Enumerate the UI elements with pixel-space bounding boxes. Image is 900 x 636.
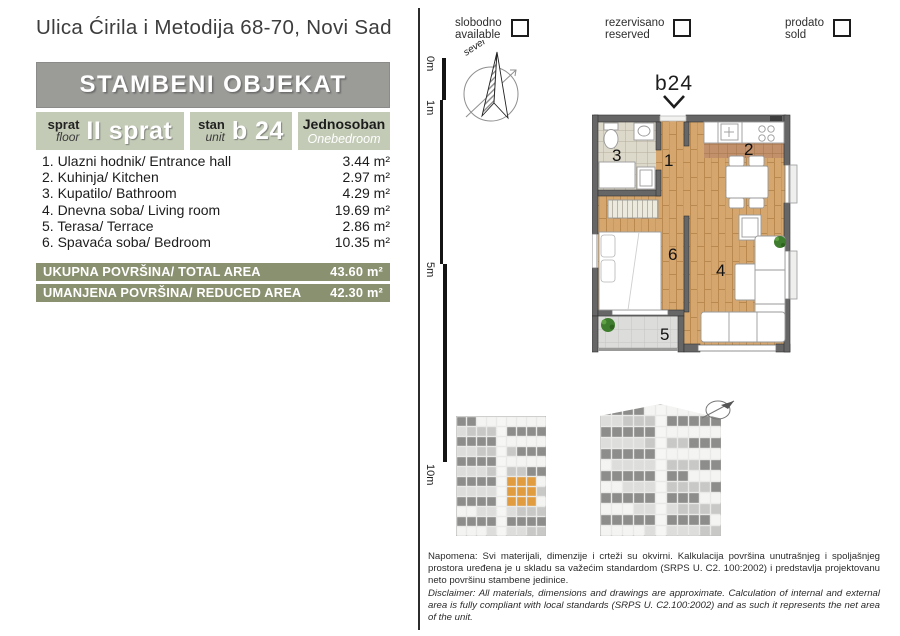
site-plan-cell [537, 487, 546, 496]
site-plan-cell [457, 527, 466, 536]
site-plan-cell [497, 527, 506, 536]
site-plan-cell [487, 467, 496, 476]
site-plan-cell [467, 437, 476, 446]
site-plan-cell [487, 487, 496, 496]
flyer-page: Ulica Ćirila i Metodija 68-70, Novi Sad … [0, 0, 900, 636]
site-plan-cell [477, 507, 486, 516]
room-row: 4. Dnevna soba/ Living room 19.69 m² [36, 202, 390, 218]
site-plan-cell [457, 487, 466, 496]
site-plan-cell [678, 427, 688, 437]
room-row: 1. Ulazni hodnik/ Entrance hall 3.44 m² [36, 153, 390, 169]
site-plan-cell [689, 493, 699, 503]
site-plan-cell [656, 482, 666, 492]
site-plan-cell [667, 427, 677, 437]
room-label: 6. Spavaća soba/ Bedroom [42, 234, 211, 250]
reduced-area-bar: UMANJENA POVRŠINA/ REDUCED AREA 42.30 m² [36, 284, 390, 302]
site-plan-cell [467, 527, 476, 536]
site-plan-cell [612, 493, 622, 503]
site-plan-cell [678, 438, 688, 448]
site-plan-cell [700, 515, 710, 525]
site-plan-cell [537, 477, 546, 486]
site-plan-cell [527, 417, 536, 426]
site-plan-cell [623, 427, 633, 437]
room-area: 4.29 m² [343, 185, 390, 201]
site-plan-cell [634, 460, 644, 470]
site-plan-cell [601, 405, 611, 415]
site-plan-cell [517, 417, 526, 426]
site-plan-cell [487, 417, 496, 426]
type-label-sr: Jednosoban [303, 117, 385, 132]
site-plan-cell [667, 493, 677, 503]
site-plan-cell [689, 405, 699, 415]
site-plan-cell [656, 526, 666, 536]
site-plan-cell [711, 493, 721, 503]
site-plan-cell [612, 515, 622, 525]
site-plan-cell [667, 526, 677, 536]
site-plan-cell [457, 457, 466, 466]
room-area: 19.69 m² [335, 202, 390, 218]
site-plan-cell [656, 405, 666, 415]
disclaimer-english: Disclaimer: All materials, dimensions an… [428, 588, 880, 625]
site-plan-cell [517, 527, 526, 536]
site-plan-cell [667, 504, 677, 514]
scale-label-10m: 10m [424, 464, 436, 485]
site-plan-cell [645, 438, 655, 448]
site-plan-cell [457, 517, 466, 526]
site-plan-cell [517, 447, 526, 456]
site-plan-cell [601, 438, 611, 448]
site-plan-cell [645, 493, 655, 503]
site-plan-cell [467, 487, 476, 496]
room-label: 3. Kupatilo/ Bathroom [42, 185, 177, 201]
site-compass-icon [700, 396, 736, 422]
site-plan-cell [487, 477, 496, 486]
site-plan-right-building [600, 404, 721, 536]
site-plan-cell [689, 515, 699, 525]
site-plan-cell [711, 427, 721, 437]
site-plan-cell [711, 526, 721, 536]
site-plan-cell [634, 504, 644, 514]
legend-reserved-en: reserved [605, 30, 664, 42]
site-plan-cell [623, 471, 633, 481]
site-plan-cell [527, 427, 536, 436]
site-plan-cell [700, 438, 710, 448]
legend-sold-label: prodato sold [785, 18, 824, 42]
site-plan-cell [634, 427, 644, 437]
site-plan-cell [689, 504, 699, 514]
site-plan-cell [634, 438, 644, 448]
site-plan-cell [623, 449, 633, 459]
site-plan-cell [645, 416, 655, 426]
room-number-hall: 1 [664, 151, 673, 170]
unit-labels: stan unit [198, 119, 225, 144]
reserved-checkbox[interactable] [673, 19, 691, 37]
site-plan-cell [487, 447, 496, 456]
site-plan-cell [689, 438, 699, 448]
site-plan-cell [457, 417, 466, 426]
site-plan-cell [711, 449, 721, 459]
site-plan-cell [656, 504, 666, 514]
site-plan-cell [527, 507, 536, 516]
room-list: 1. Ulazni hodnik/ Entrance hall 3.44 m² … [36, 153, 390, 250]
site-plan-cell [634, 471, 644, 481]
site-plan-cell [700, 493, 710, 503]
site-plan-cell [497, 477, 506, 486]
site-plan-cell [601, 427, 611, 437]
site-plan-cell [527, 517, 536, 526]
site-plan-cell [497, 457, 506, 466]
unit-info-row: sprat floor II sprat stan unit b 24 Jedn… [36, 112, 390, 150]
site-plan-cell [601, 482, 611, 492]
site-plan-cell [612, 438, 622, 448]
site-plan-cell [656, 449, 666, 459]
site-plan-cell [527, 477, 536, 486]
site-plan-cell [507, 517, 516, 526]
site-plan-cell [667, 460, 677, 470]
site-plan-cell [645, 427, 655, 437]
site-plan-cell [711, 471, 721, 481]
site-plan-cell [678, 471, 688, 481]
site-plan-cell [612, 482, 622, 492]
site-plan-cell [612, 405, 622, 415]
site-plan-cell [689, 416, 699, 426]
site-plan-cell [537, 437, 546, 446]
site-plan-cell [497, 497, 506, 506]
site-plan-cell [623, 504, 633, 514]
site-plan-cell [477, 457, 486, 466]
site-plan-cell [667, 482, 677, 492]
site-plan-cell [678, 482, 688, 492]
site-plan-cell [477, 447, 486, 456]
legend-available: slobodno available [455, 18, 529, 42]
room-number-kitchen: 2 [744, 140, 753, 159]
room-area: 2.86 m² [343, 218, 390, 234]
site-plan-cell [700, 471, 710, 481]
site-plan-cell [537, 517, 546, 526]
site-plan-cell [497, 517, 506, 526]
site-plan-cell [527, 447, 536, 456]
bedroom-furniture [599, 200, 661, 310]
site-plan-cell [517, 467, 526, 476]
scale-segment-5-10m [443, 264, 447, 462]
site-plan-cell [527, 457, 536, 466]
legend-sold-en: sold [785, 30, 824, 42]
unit-label-en: unit [198, 131, 225, 144]
site-plan-cell [487, 427, 496, 436]
legend-sold: prodato sold [785, 18, 851, 42]
site-plan-cell [457, 427, 466, 436]
room-label: 1. Ulazni hodnik/ Entrance hall [42, 153, 231, 169]
site-plan-cell [527, 467, 536, 476]
site-plan-cell [656, 493, 666, 503]
site-plan-cell [507, 527, 516, 536]
site-plan-cell [467, 417, 476, 426]
type-cell: Jednosoban Onebedroom [298, 112, 390, 150]
floor-value: II sprat [86, 117, 172, 146]
site-plan-cell [601, 449, 611, 459]
site-plan-cell [487, 457, 496, 466]
room-area: 10.35 m² [335, 234, 390, 250]
site-plan-cell [623, 482, 633, 492]
site-plan-cell [711, 438, 721, 448]
site-plan-cell [517, 457, 526, 466]
site-plan-cell [517, 507, 526, 516]
site-plan-cell [527, 487, 536, 496]
site-plan-cell [517, 437, 526, 446]
plan-unit-label: b24 [650, 72, 698, 96]
unit-cell: stan unit b 24 [190, 112, 292, 150]
site-plan-left-building [456, 416, 546, 536]
site-plan-cell [477, 437, 486, 446]
site-plan-cell [623, 526, 633, 536]
site-plan-cell [497, 507, 506, 516]
site-plan-cell [477, 487, 486, 496]
legend-reserved: rezervisano reserved [605, 18, 691, 42]
site-plan-cell [467, 447, 476, 456]
site-plan-cell [678, 526, 688, 536]
room-area: 3.44 m² [343, 153, 390, 169]
vertical-divider [418, 8, 420, 630]
site-plan-cell [656, 471, 666, 481]
room-label: 5. Terasa/ Terrace [42, 218, 154, 234]
site-plan-cell [667, 405, 677, 415]
site-plan-cell [656, 416, 666, 426]
site-plan-cell [507, 427, 516, 436]
site-plan-cell [667, 438, 677, 448]
site-plan-cell [634, 493, 644, 503]
room-row: 6. Spavaća soba/ Bedroom 10.35 m² [36, 234, 390, 250]
floor-labels: sprat floor [48, 119, 80, 144]
site-plan-cell [507, 467, 516, 476]
site-plan-cell [477, 517, 486, 526]
scale-label-5m: 5m [424, 262, 436, 277]
site-plan-cell [678, 416, 688, 426]
site-plan-cell [517, 487, 526, 496]
room-label: 2. Kuhinja/ Kitchen [42, 169, 159, 185]
disclaimer-block: Napomena: Svi materijali, dimenzije i cr… [428, 551, 880, 624]
site-plan-cell [656, 460, 666, 470]
building-header-label: STAMBENI OBJEKAT [79, 71, 346, 99]
building-header: STAMBENI OBJEKAT [36, 62, 390, 108]
site-plan-cell [634, 515, 644, 525]
site-plan-cell [667, 416, 677, 426]
available-checkbox[interactable] [511, 19, 529, 37]
legend-available-label: slobodno available [455, 18, 502, 42]
site-plan-cell [645, 460, 655, 470]
site-plan-cell [678, 493, 688, 503]
site-plan-cell [457, 477, 466, 486]
room-row: 2. Kuhinja/ Kitchen 2.97 m² [36, 169, 390, 185]
site-plan-cell [678, 449, 688, 459]
site-plan-cell [477, 417, 486, 426]
site-plan-cell [497, 467, 506, 476]
site-plan-cell [487, 527, 496, 536]
site-plan-cell [678, 460, 688, 470]
room-number-bedroom: 6 [668, 245, 677, 264]
disclaimer-serbian: Napomena: Svi materijali, dimenzije i cr… [428, 551, 880, 588]
unit-value: b 24 [232, 117, 284, 146]
scale-label-1m: 1m [424, 100, 436, 115]
site-plan-cell [711, 482, 721, 492]
site-plan-cell [612, 504, 622, 514]
site-plan-cell [537, 497, 546, 506]
site-plan-cell [467, 427, 476, 436]
site-plan-cell [537, 507, 546, 516]
room-area: 2.97 m² [343, 169, 390, 185]
site-plan-cell [656, 427, 666, 437]
legend-reserved-label: rezervisano reserved [605, 18, 664, 42]
sold-checkbox[interactable] [833, 19, 851, 37]
site-plan-cell [537, 527, 546, 536]
site-plan-cell [477, 477, 486, 486]
site-plan-cell [507, 497, 516, 506]
site-plan-cell [467, 477, 476, 486]
site-plan-cell [623, 460, 633, 470]
site-plan-cell [467, 507, 476, 516]
room-row: 5. Terasa/ Terrace 2.86 m² [36, 218, 390, 234]
site-plan-cell [667, 515, 677, 525]
site-plan-cell [700, 482, 710, 492]
floor-label-en: floor [48, 131, 80, 144]
site-plan-cell [467, 467, 476, 476]
site-plan-cell [689, 460, 699, 470]
site-plan-cell [634, 449, 644, 459]
site-plan-cell [711, 515, 721, 525]
site-plan-cell [601, 471, 611, 481]
site-plan-cell [457, 507, 466, 516]
site-plan-cell [700, 504, 710, 514]
site-plan-cell [507, 447, 516, 456]
site-plan-cell [623, 515, 633, 525]
site-plan-cell [612, 471, 622, 481]
site-plan-cell [457, 467, 466, 476]
site-plan-cell [601, 493, 611, 503]
site-plan-cell [517, 497, 526, 506]
site-plan-cell [507, 477, 516, 486]
north-compass-icon: sever [452, 40, 530, 134]
site-plan-cell [467, 517, 476, 526]
scale-segment-0-1m [442, 58, 446, 100]
site-plan-cell [517, 477, 526, 486]
site-plan-cell [527, 497, 536, 506]
site-plan-cell [507, 487, 516, 496]
site-plan-cell [497, 487, 506, 496]
site-plan-cell [601, 460, 611, 470]
site-plan-cell [689, 449, 699, 459]
site-plan-cell [527, 527, 536, 536]
site-plan-cell [700, 449, 710, 459]
total-area-bar: UKUPNA POVRŠINA/ TOTAL AREA 43.60 m² [36, 263, 390, 281]
site-plan-cell [623, 416, 633, 426]
site-plan-cell [645, 471, 655, 481]
site-plan-cell [601, 526, 611, 536]
room-number-living: 4 [716, 261, 725, 280]
site-plan-cell [645, 482, 655, 492]
site-plan-cell [487, 437, 496, 446]
site-plan-cell [477, 427, 486, 436]
site-plan-cell [537, 467, 546, 476]
site-plan-cell [711, 460, 721, 470]
site-plan-cell [645, 405, 655, 415]
site-plan-cell [689, 471, 699, 481]
site-plan-cell [623, 493, 633, 503]
site-plan-cell [612, 526, 622, 536]
total-area-value: 43.60 m² [330, 264, 383, 279]
kitchen-vent [770, 116, 782, 121]
site-plan-cell [477, 527, 486, 536]
site-plan-cell [612, 416, 622, 426]
site-plan-cell [634, 416, 644, 426]
site-plan-cell [678, 405, 688, 415]
site-plan-cell [487, 497, 496, 506]
site-plan-cell [487, 507, 496, 516]
site-plan-cell [507, 457, 516, 466]
site-plan-cell [601, 504, 611, 514]
site-plan-cell [507, 417, 516, 426]
scale-label-0m: 0m [424, 56, 436, 71]
floor-plan: 1 2 3 4 5 6 [592, 108, 804, 356]
site-plan-cell [645, 526, 655, 536]
room-label: 4. Dnevna soba/ Living room [42, 202, 220, 218]
site-plan-cell [612, 460, 622, 470]
site-plan-cell [700, 460, 710, 470]
site-plan-cell [689, 427, 699, 437]
site-plan-cell [623, 405, 633, 415]
site-plan-cell [537, 427, 546, 436]
site-plan-cell [467, 497, 476, 506]
site-plan-cell [497, 447, 506, 456]
site-plan-cell [497, 427, 506, 436]
site-plan-cell [689, 526, 699, 536]
site-plan-cell [517, 427, 526, 436]
site-plan-cell [477, 497, 486, 506]
site-plan-cell [634, 482, 644, 492]
site-plan-cell [689, 482, 699, 492]
site-plan-cell [537, 417, 546, 426]
site-plan-cell [678, 515, 688, 525]
site-plan-cell [656, 515, 666, 525]
address-title: Ulica Ćirila i Metodija 68-70, Novi Sad [36, 16, 416, 40]
site-plan-cell [487, 517, 496, 526]
site-plan-cell [517, 517, 526, 526]
site-plan-cell [645, 504, 655, 514]
site-plan-cell [623, 438, 633, 448]
site-plan-cell [497, 437, 506, 446]
site-plan-cell [667, 471, 677, 481]
site-plan-cell [700, 526, 710, 536]
site-plan-cell [497, 417, 506, 426]
site-plan-cell [612, 449, 622, 459]
site-plan-cell [711, 504, 721, 514]
site-plan-cell [645, 515, 655, 525]
site-plan-cell [457, 437, 466, 446]
site-plan-cell [678, 504, 688, 514]
compass-north-label: sever [462, 40, 489, 59]
site-plan-cell [612, 427, 622, 437]
site-plan-cell [537, 457, 546, 466]
reduced-area-value: 42.30 m² [330, 285, 383, 300]
site-plan-cell [634, 405, 644, 415]
total-area-label: UKUPNA POVRŠINA/ TOTAL AREA [43, 264, 261, 279]
reduced-area-label: UMANJENA POVRŠINA/ REDUCED AREA [43, 285, 301, 300]
type-label-en: Onebedroom [308, 132, 381, 146]
site-plan-cell [477, 467, 486, 476]
site-plan-cell [656, 438, 666, 448]
site-plan-cell [507, 507, 516, 516]
site-plan-cell [457, 497, 466, 506]
site-plan-cell [700, 427, 710, 437]
scale-segment-1-5m [440, 100, 443, 264]
